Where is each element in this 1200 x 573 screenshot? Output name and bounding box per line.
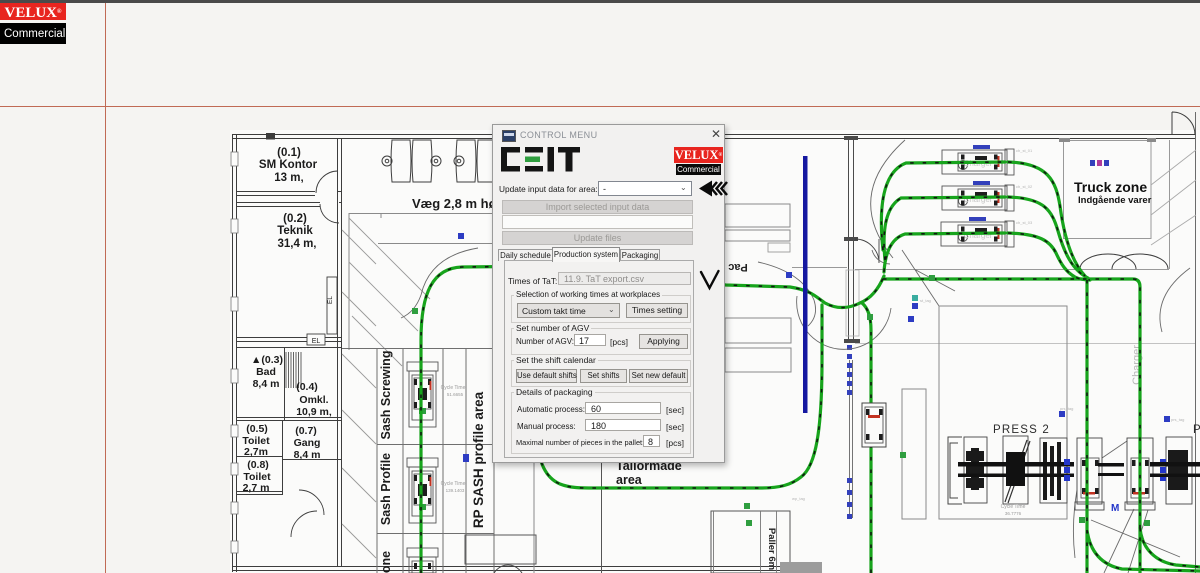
svg-text:(0.5): (0.5) xyxy=(246,423,268,435)
svg-text:st_tag: st_tag xyxy=(920,298,931,303)
svg-text:RP SASH profile area: RP SASH profile area xyxy=(471,391,486,528)
svg-text:Omkl.: Omkl. xyxy=(299,394,328,406)
svg-text:P: P xyxy=(1193,424,1200,436)
svg-text:wp_tag: wp_tag xyxy=(792,496,805,501)
svg-text:ch_st_02: ch_st_02 xyxy=(1016,184,1033,189)
svg-text:8,4 m: 8,4 m xyxy=(253,378,280,390)
svg-text:EL: EL xyxy=(327,296,334,304)
svg-text:Teknik: Teknik xyxy=(277,225,313,237)
svg-text:Væg 2,8 m hø: Væg 2,8 m hø xyxy=(412,196,497,211)
svg-text:M: M xyxy=(1111,503,1119,514)
svg-text:SM Kontor: SM Kontor xyxy=(259,159,318,171)
svg-text:prs_tag: prs_tag xyxy=(1171,417,1184,422)
svg-text:Sash Profile: Sash Profile xyxy=(379,453,393,525)
svg-text:Sash Screwing: Sash Screwing xyxy=(379,351,393,440)
svg-text:EL: EL xyxy=(312,338,321,345)
svg-text:139.1403: 139.1403 xyxy=(446,488,465,493)
svg-text:Gang: Gang xyxy=(294,437,321,449)
svg-text:(0.1): (0.1) xyxy=(277,147,301,159)
svg-text:2,7 m: 2,7 m xyxy=(243,482,270,494)
svg-text:Indgående varer: Indgående varer xyxy=(1078,195,1152,206)
svg-text:(0.8): (0.8) xyxy=(247,459,269,471)
svg-text:Truck zone: Truck zone xyxy=(1074,179,1147,195)
svg-text:▲(0.3): ▲(0.3) xyxy=(251,354,283,366)
svg-text:one: one xyxy=(379,551,393,573)
svg-text:36.7776: 36.7776 xyxy=(1005,511,1022,516)
svg-text:ch_st_01: ch_st_01 xyxy=(1016,148,1033,153)
svg-text:2,7m: 2,7m xyxy=(244,446,268,458)
svg-text:area: area xyxy=(616,473,643,487)
svg-text:prs_tag: prs_tag xyxy=(1060,406,1073,411)
svg-text:Cycle Time: Cycle Time xyxy=(441,481,466,487)
svg-text:8,4 m: 8,4 m xyxy=(294,449,321,461)
svg-text:(0.2): (0.2) xyxy=(283,213,307,225)
svg-text:Bad: Bad xyxy=(256,366,276,378)
svg-text:(0.7): (0.7) xyxy=(295,425,317,437)
svg-text:13 m‚: 13 m‚ xyxy=(274,172,303,184)
svg-text:51.6655: 51.6655 xyxy=(447,392,464,397)
svg-text:Paller 6m: Paller 6m xyxy=(766,528,777,570)
svg-text:ch_st_03: ch_st_03 xyxy=(1016,220,1033,225)
svg-text:(0.4): (0.4) xyxy=(296,381,318,393)
svg-text:PRESS 2: PRESS 2 xyxy=(993,424,1050,436)
svg-text:Cycle Time: Cycle Time xyxy=(441,385,466,391)
svg-text:Cycle Time: Cycle Time xyxy=(1001,504,1026,510)
svg-text:31,4 m‚: 31,4 m‚ xyxy=(278,238,317,250)
svg-text:10,9 m‚: 10,9 m‚ xyxy=(296,406,332,418)
